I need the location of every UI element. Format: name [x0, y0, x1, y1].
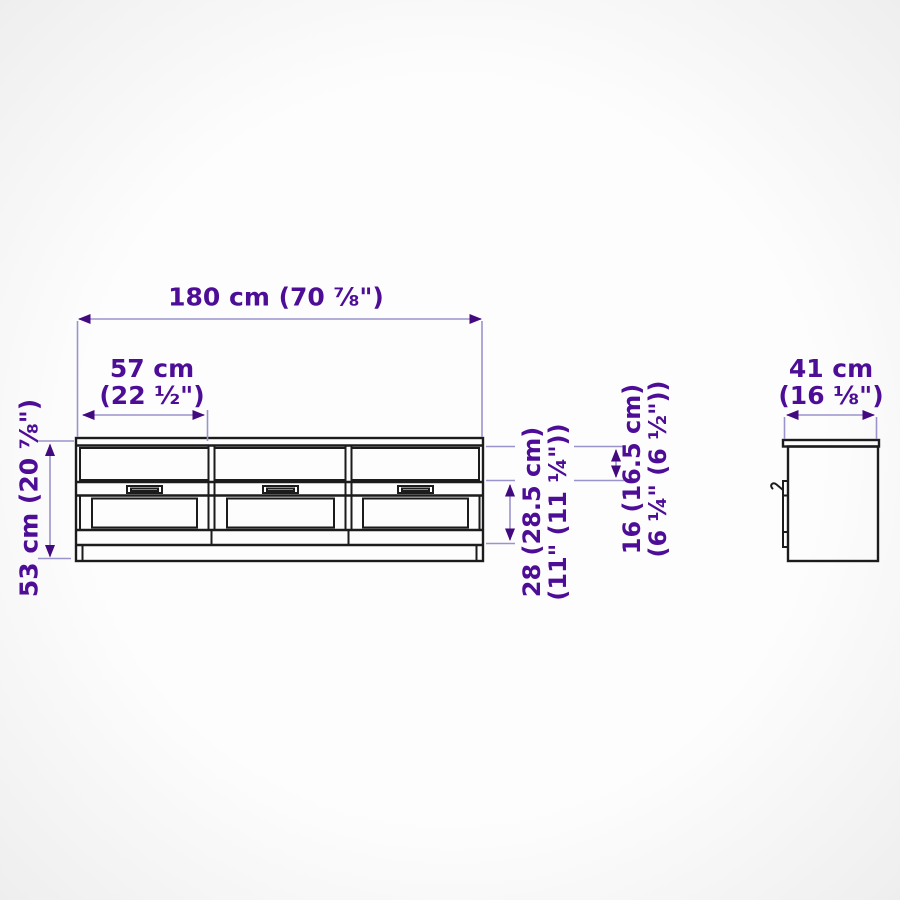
dimension-diagram: 180 cm (70 ⅞") 57 cm (22 ½") 53 cm (20 ⅞… — [0, 0, 900, 900]
drawer-front-height-imperial: (11" (11 ¼")) — [546, 423, 572, 600]
drawer-front-panel — [363, 499, 468, 528]
overall-height-label: 53 cm (20 ⅞") — [16, 399, 43, 597]
drawer-handle — [127, 486, 162, 493]
bay-width-metric: 57 cm — [99, 355, 204, 382]
depth-dimension — [785, 415, 877, 439]
open-compartment — [352, 448, 480, 480]
tv-bench-front-view — [76, 438, 483, 561]
top-shelf-height-imperial: (6 ¼" (6 ½")) — [646, 380, 672, 557]
top-shelf-height-metric: 16 (16.5 cm) — [620, 380, 646, 557]
drawer-front-panel — [92, 499, 197, 528]
overall-width-label: 180 cm (70 ⅞") — [168, 284, 384, 311]
side-handle-hook — [771, 483, 783, 490]
depth-imperial: (16 ⅛") — [778, 382, 883, 409]
drawer-handle — [263, 486, 298, 493]
drawer-side-profile — [783, 481, 788, 547]
drawer-front-height-metric: 28 (28.5 cm) — [520, 423, 546, 600]
bay-width-label: 57 cm (22 ½") — [99, 355, 204, 409]
drawer-front-height-label: 28 (28.5 cm) (11" (11 ¼")) — [520, 423, 572, 600]
depth-label: 41 cm (16 ⅛") — [778, 355, 883, 409]
diagram-canvas — [0, 0, 900, 900]
bay-width-dimension — [83, 410, 208, 441]
drawer-handle — [398, 486, 433, 493]
tv-bench-side-view — [771, 440, 879, 561]
bay-width-imperial: (22 ½") — [99, 382, 204, 409]
depth-metric: 41 cm — [778, 355, 883, 382]
drawer-front-panel — [227, 499, 334, 528]
open-compartment — [215, 448, 346, 480]
open-compartment — [80, 448, 209, 480]
drawer-height-dimension — [486, 481, 515, 544]
top-shelf-height-label: 16 (16.5 cm) (6 ¼" (6 ½")) — [620, 380, 672, 557]
